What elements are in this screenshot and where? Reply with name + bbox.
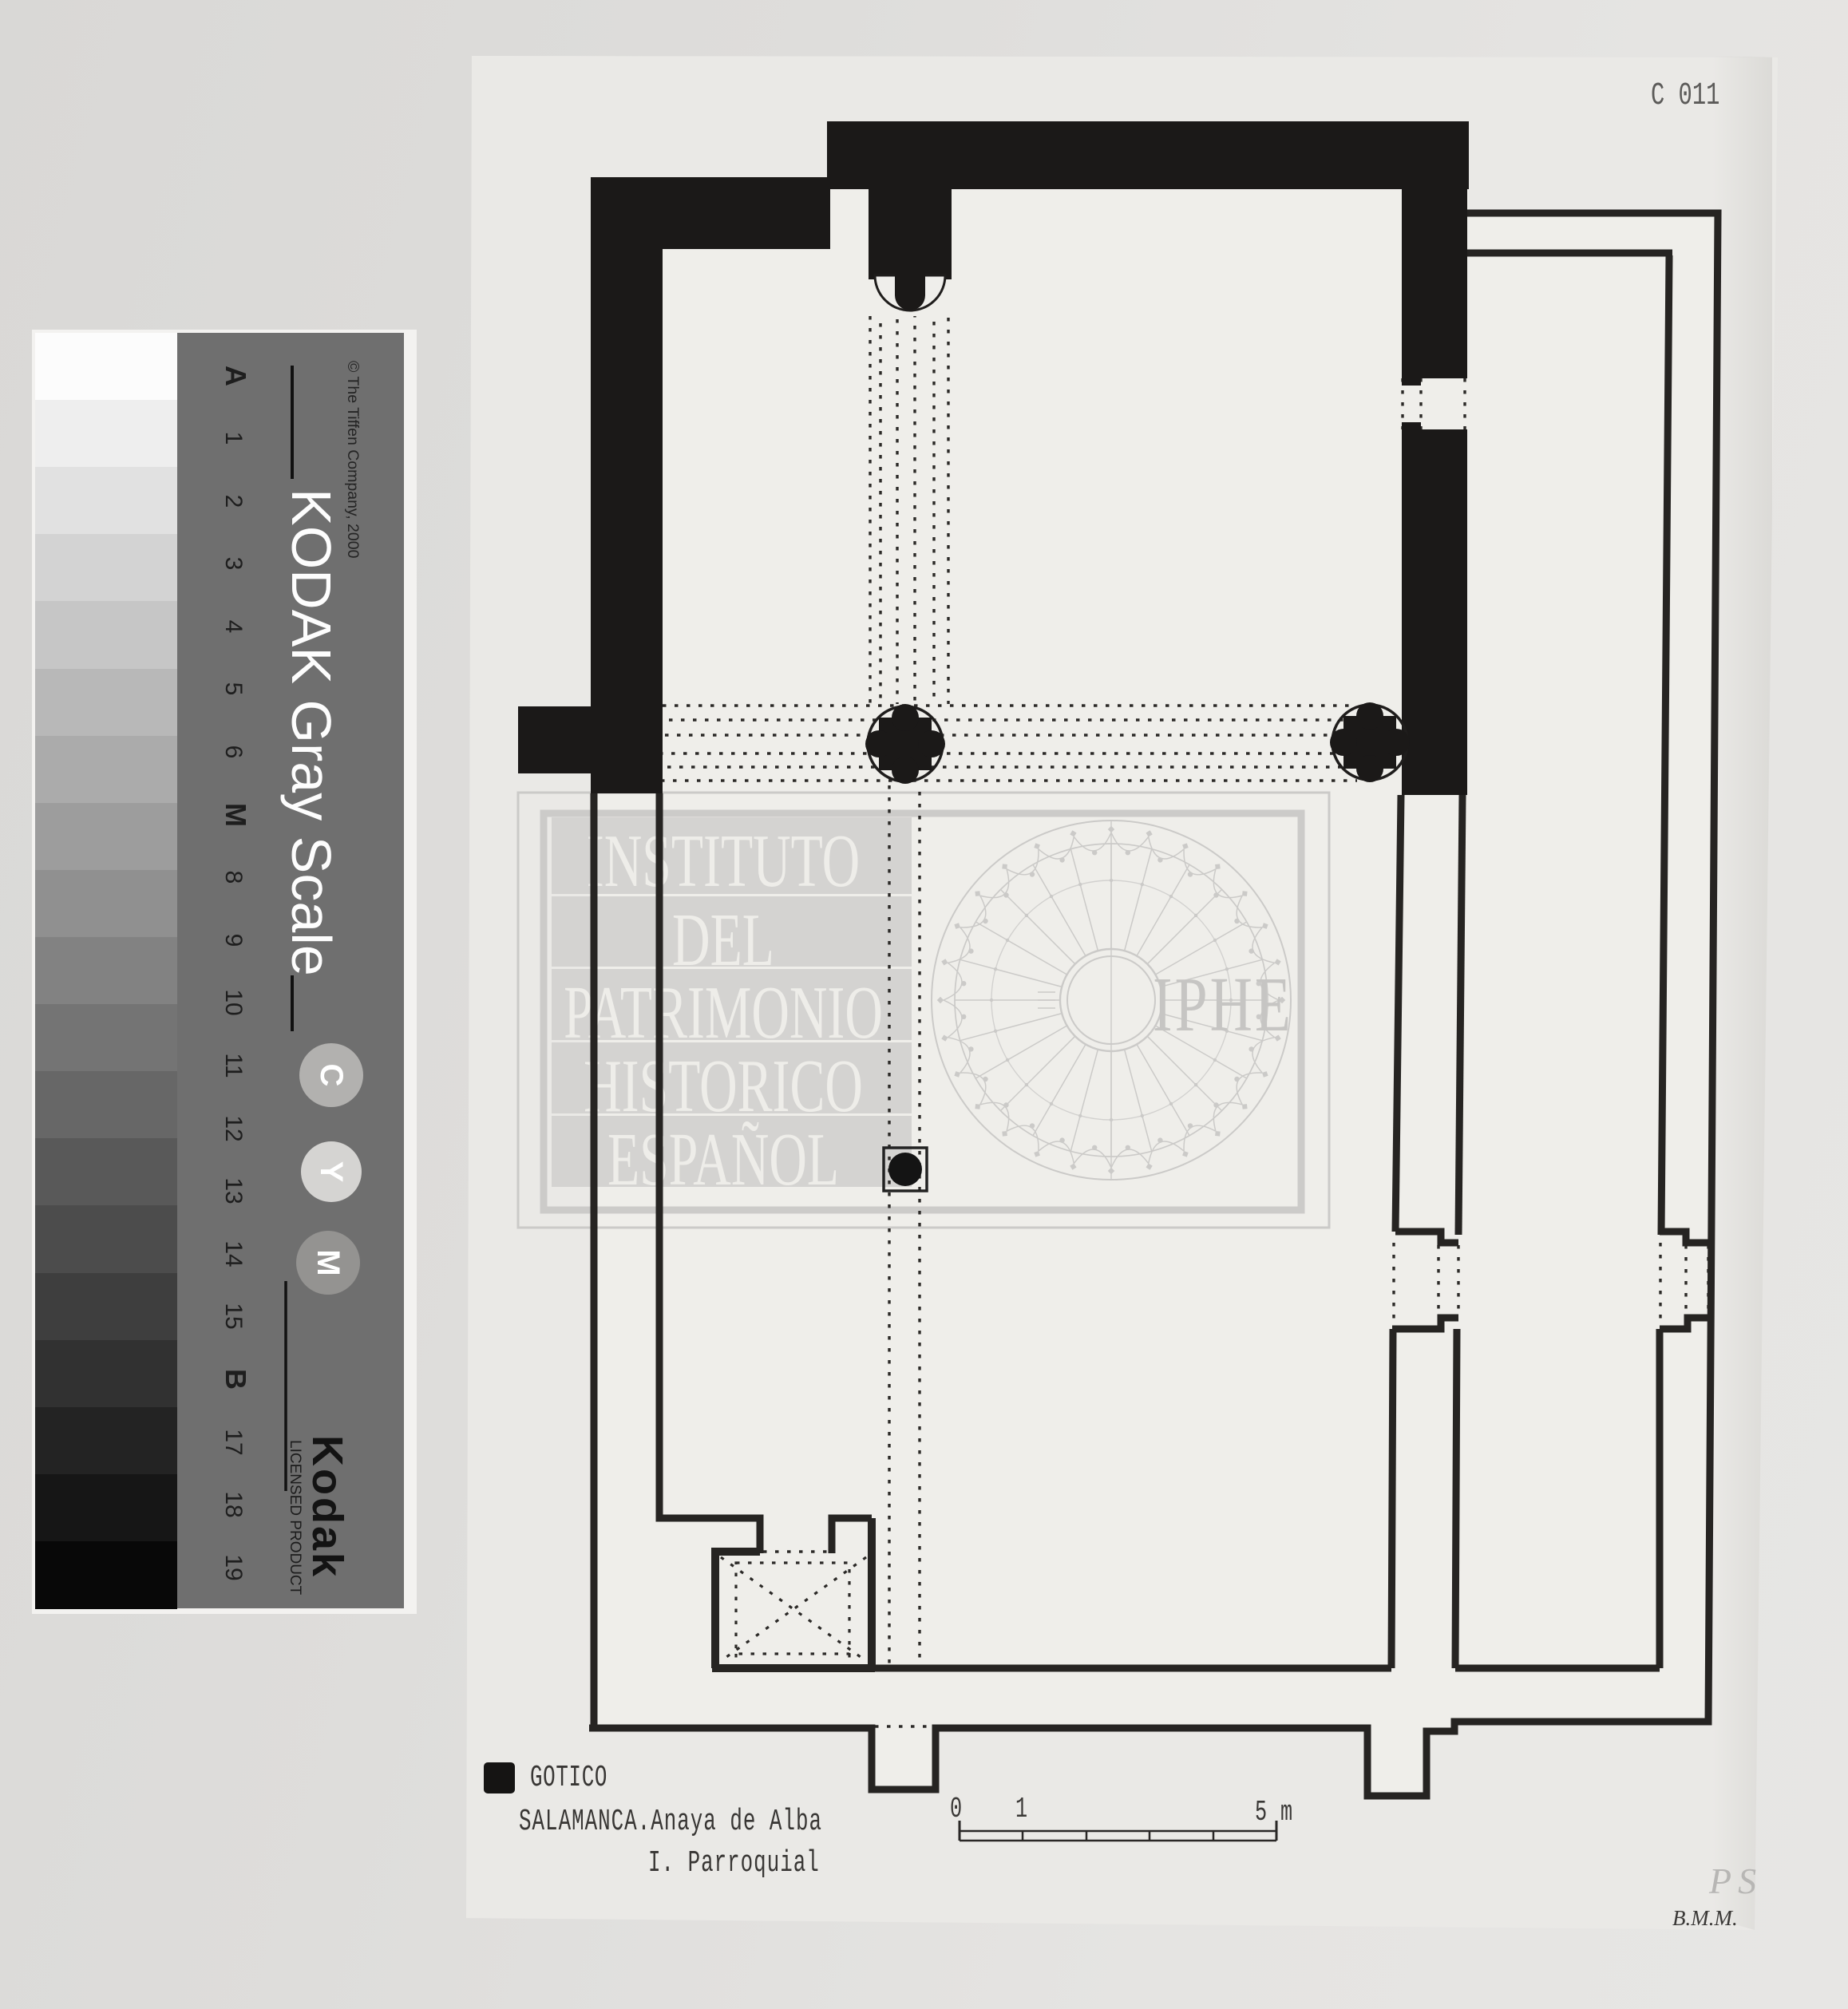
svg-text:A: A [220,366,252,386]
svg-text:LICENSED PRODUCT: LICENSED PRODUCT [287,1440,303,1596]
svg-text:13: 13 [220,1177,247,1204]
svg-text:C: C [314,1064,349,1087]
svg-text:ESPAÑOL: ESPAÑOL [607,1118,839,1201]
svg-text:PATRIMONIO: PATRIMONIO [564,971,883,1054]
svg-text:© The Tiffen Company, 2000: © The Tiffen Company, 2000 [344,361,362,559]
svg-text:PS: PS [1708,1861,1763,1901]
svg-text:5: 5 [1255,1797,1267,1829]
svg-text:18: 18 [220,1491,247,1517]
svg-text:GOTICO: GOTICO [530,1760,607,1794]
svg-text:3: 3 [220,557,247,571]
svg-text:12: 12 [220,1115,247,1141]
svg-text:6: 6 [220,745,247,759]
svg-text:1: 1 [1015,1793,1027,1826]
svg-text:C 011: C 011 [1651,78,1719,114]
svg-text:INSTITUTO: INSTITUTO [587,820,860,903]
svg-text:8: 8 [220,871,247,884]
svg-text:15: 15 [220,1303,247,1329]
svg-text:Kodak: Kodak [303,1435,351,1579]
svg-text:Y: Y [314,1161,349,1183]
svg-text:9: 9 [220,934,247,947]
svg-text:B.M.M.: B.M.M. [1672,1906,1738,1930]
svg-text:2: 2 [220,495,247,508]
svg-text:I. Parroquial: I. Parroquial [648,1845,820,1880]
svg-text:17: 17 [220,1429,247,1455]
svg-text:14: 14 [220,1240,247,1267]
svg-text:19: 19 [220,1554,247,1580]
svg-text:IPHE: IPHE [1153,961,1293,1047]
svg-text:1: 1 [220,432,247,445]
svg-text:HISTORICO: HISTORICO [584,1045,863,1128]
svg-text:11: 11 [220,1053,247,1078]
svg-text:5: 5 [220,682,247,696]
svg-text:KODAK Gray Scale: KODAK Gray Scale [280,488,342,976]
svg-text:4: 4 [220,620,247,634]
svg-text:B: B [220,1369,252,1390]
svg-text:SALAMANCA.Anaya de Alba: SALAMANCA.Anaya de Alba [519,1804,822,1838]
svg-text:M: M [311,1249,346,1275]
svg-text:m: m [1280,1797,1292,1829]
svg-text:10: 10 [220,989,247,1015]
svg-text:M: M [220,803,252,827]
